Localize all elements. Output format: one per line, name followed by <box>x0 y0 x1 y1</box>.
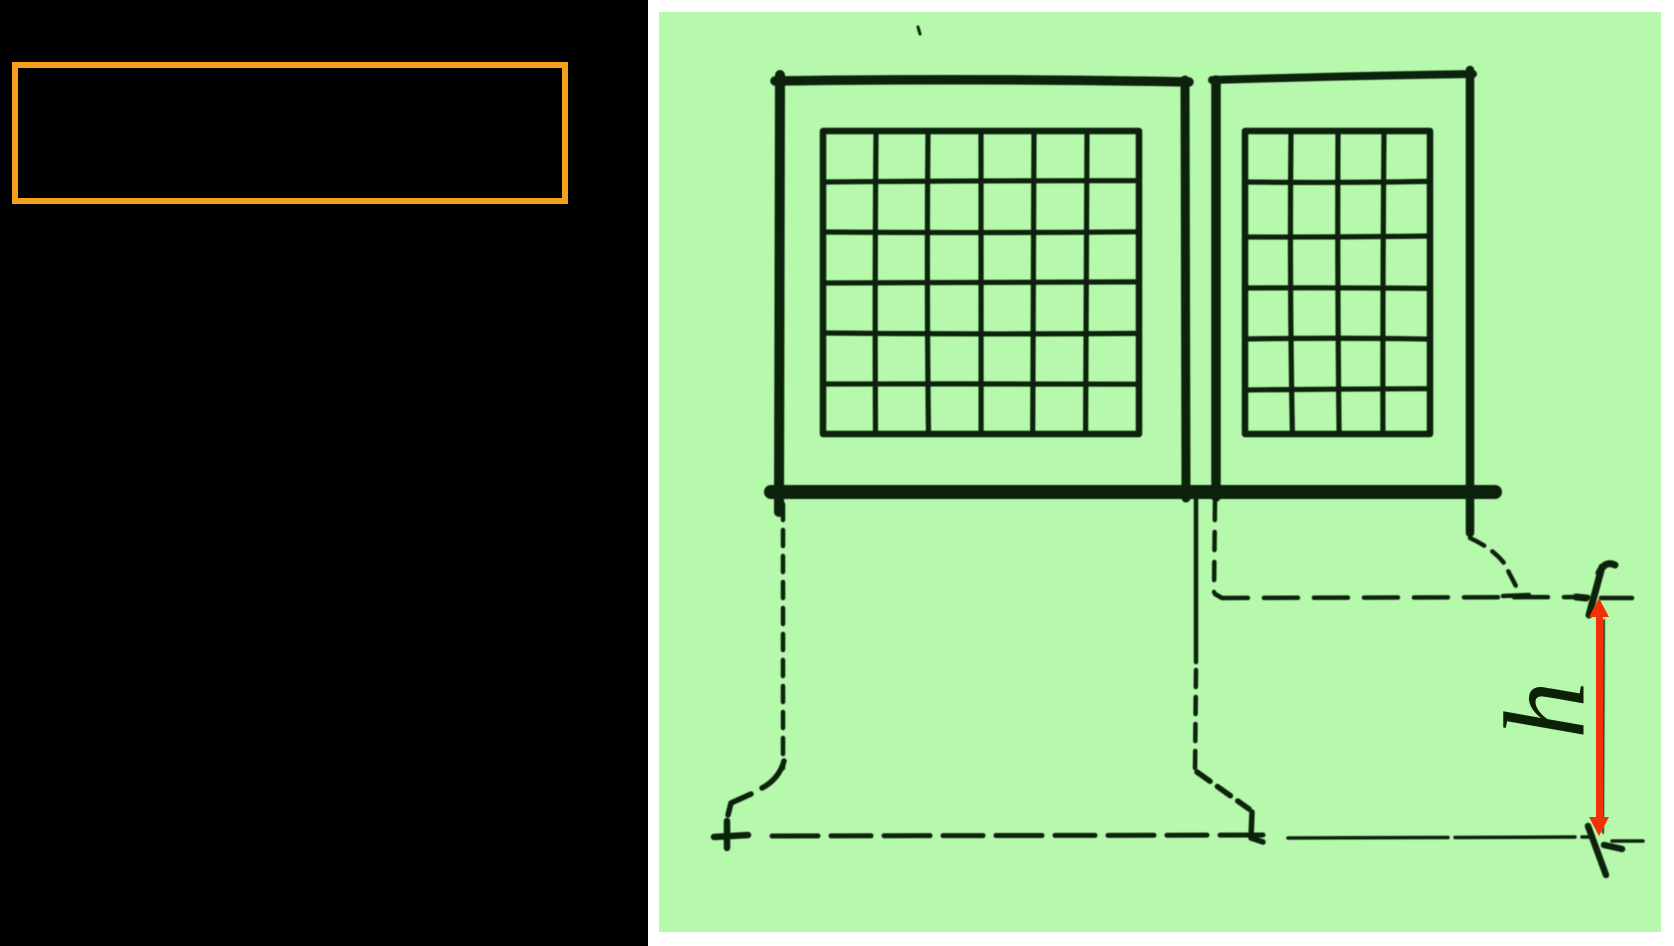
svg-text:h: h <box>1481 681 1608 739</box>
